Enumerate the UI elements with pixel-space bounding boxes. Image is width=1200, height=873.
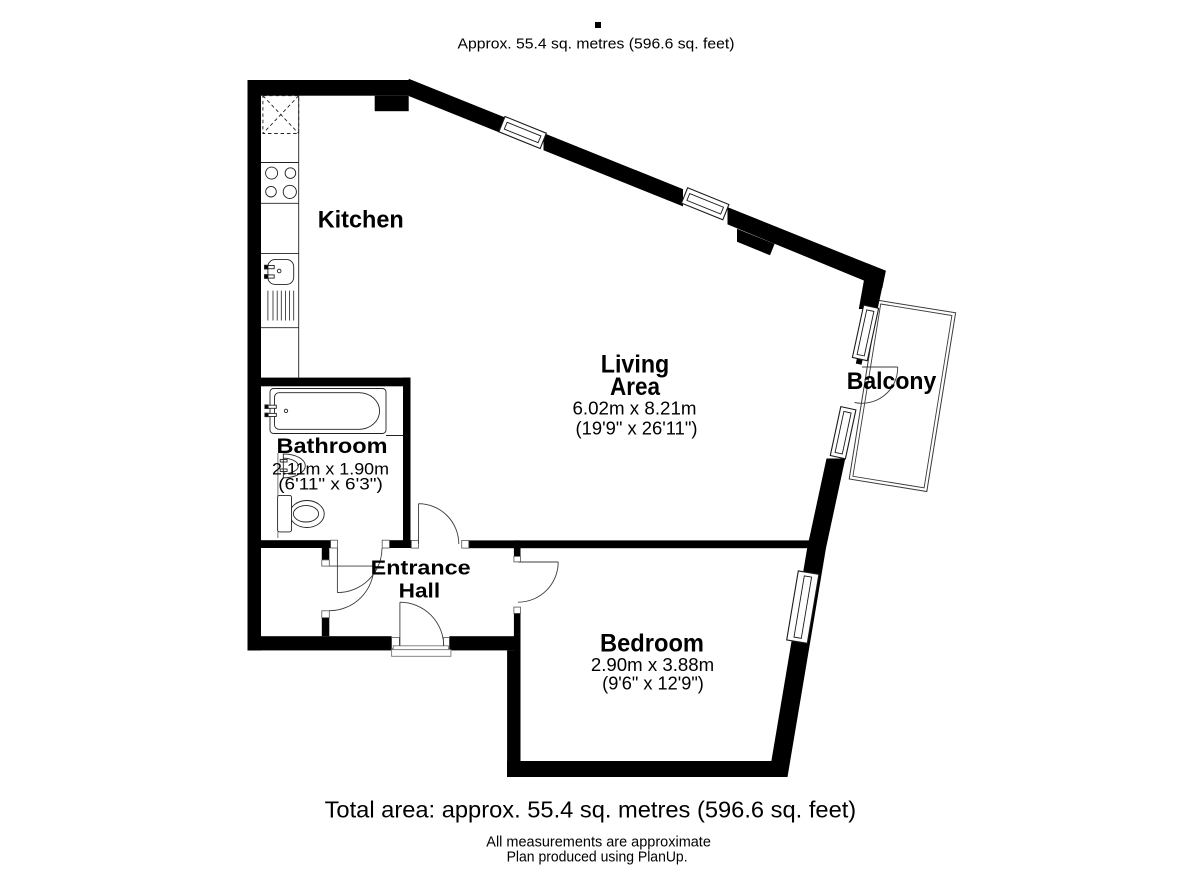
- svg-text:Kitchen: Kitchen: [318, 207, 404, 234]
- svg-text:Area: Area: [610, 373, 661, 401]
- svg-text:(19'9" x 26'11"): (19'9" x 26'11"): [576, 418, 698, 439]
- svg-text:Plan produced using PlanUp.: Plan produced using PlanUp.: [507, 850, 688, 866]
- svg-text:Total area: approx. 55.4 sq. m: Total area: approx. 55.4 sq. metres (596…: [325, 797, 857, 823]
- svg-text:Approx. 55.4 sq. metres (596.6: Approx. 55.4 sq. metres (596.6 sq. feet): [458, 35, 735, 52]
- svg-text:6.02m x 8.21m: 6.02m x 8.21m: [573, 398, 697, 419]
- svg-text:(6'11" x 6'3"): (6'11" x 6'3"): [278, 475, 383, 494]
- svg-text:Bathroom: Bathroom: [277, 435, 388, 458]
- svg-text:(9'6" x 12'9"): (9'6" x 12'9"): [602, 673, 704, 694]
- svg-text:All measurements are approxima: All measurements are approximate: [486, 835, 711, 851]
- svg-text:Entrance: Entrance: [371, 557, 471, 580]
- svg-text:Balcony: Balcony: [847, 368, 937, 395]
- svg-text:Hall: Hall: [399, 579, 441, 602]
